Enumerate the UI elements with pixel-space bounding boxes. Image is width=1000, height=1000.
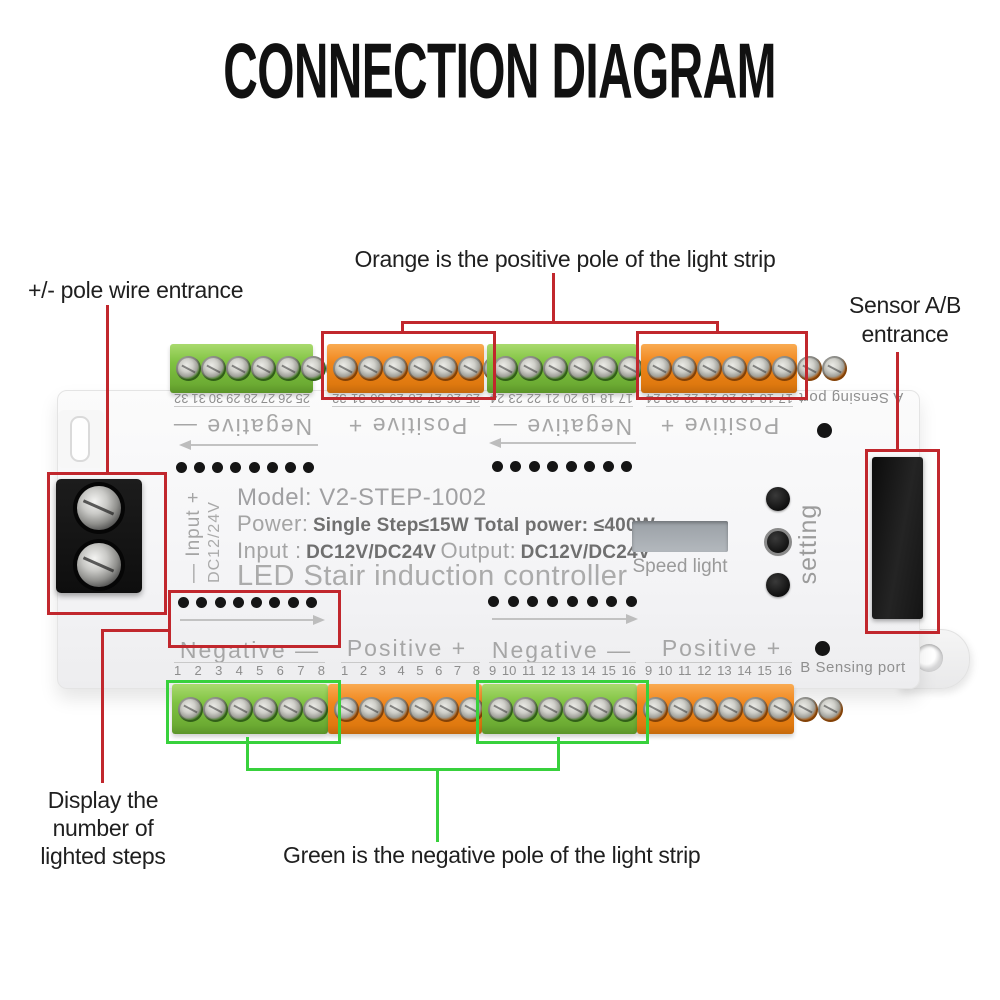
channel-number: 2	[195, 664, 202, 678]
orange-note-bracket-line	[401, 321, 719, 324]
bottom-terminal-block-4	[637, 684, 794, 734]
sensing-port-a-label: A Sensing port	[798, 389, 904, 406]
pole-entrance-callout-line	[106, 305, 109, 473]
step-led-dot	[584, 461, 595, 472]
channel-number: 8	[318, 664, 325, 678]
terminal-screw	[384, 697, 409, 722]
step-led-dot	[194, 462, 205, 473]
bottom-channel-numbers-2: 12345678	[341, 662, 480, 678]
step-led-dot	[547, 461, 558, 472]
step-led-dot	[488, 596, 499, 607]
setting-push-button	[766, 573, 790, 597]
step-led-dot	[567, 596, 578, 607]
bottom-channel-numbers-4: 910111213141516	[645, 662, 792, 678]
model-text: Model: V2-STEP-1002	[237, 484, 487, 512]
power-label: Power:	[237, 511, 308, 536]
channel-number: 27	[261, 391, 275, 405]
channel-number: 11	[522, 664, 536, 678]
channel-number: 2	[360, 664, 367, 678]
mounting-notch	[58, 410, 104, 468]
power-text: Power: Single Step≤15W Total power: ≤400…	[237, 511, 655, 537]
step-led-row-top-right	[492, 460, 632, 472]
direction-arrow-bottom-right	[490, 614, 637, 624]
step-led-row-top-left	[176, 461, 314, 473]
step-led-row-bottom-right	[488, 595, 637, 607]
terminal-screw	[518, 356, 543, 381]
channel-number: 6	[277, 664, 284, 678]
channel-number: 10	[502, 664, 516, 678]
terminal-screw	[201, 356, 226, 381]
channel-number: 13	[561, 664, 575, 678]
channel-number: 26	[278, 391, 292, 405]
channel-number: 8	[473, 664, 480, 678]
step-led-dot	[303, 462, 314, 473]
bottom-channel-numbers-3: 910111213141516	[489, 662, 636, 678]
top-polarity-label-1: Negative —	[157, 413, 327, 440]
channel-number: 31	[191, 391, 205, 405]
speed-light-label: Speed light	[628, 556, 732, 578]
sensing-port-b-label: B Sensing port	[798, 659, 908, 676]
step-led-dot	[212, 462, 223, 473]
channel-number: 32	[174, 391, 188, 405]
power-value: Single Step≤15W Total power: ≤400W	[313, 515, 655, 536]
channel-number: 11	[678, 664, 692, 678]
highlight-box-step-leds	[168, 590, 341, 648]
channel-number: 19	[582, 391, 596, 405]
highlight-box-top-orange-2	[636, 331, 808, 400]
step-led-dot	[508, 596, 519, 607]
top-channel-numbers-1: 2526272829303132	[174, 391, 310, 407]
step-led-dot	[587, 596, 598, 607]
channel-number: 14	[581, 664, 595, 678]
setting-push-button	[766, 530, 790, 554]
channel-number: 29	[226, 391, 240, 405]
display-steps-line3: lighted steps	[13, 842, 193, 870]
terminal-screw	[593, 356, 618, 381]
setting-vertical-label: setting	[794, 499, 820, 589]
orange-note-stub-line	[552, 273, 555, 323]
sensor-callout-line	[896, 352, 899, 452]
terminal-screw	[543, 356, 568, 381]
step-led-dot	[230, 462, 241, 473]
display-callout-horizontal-line	[101, 629, 171, 632]
channel-number: 5	[416, 664, 423, 678]
bottom-polarity-label-3: Negative —	[477, 637, 647, 664]
terminal-screw	[176, 356, 201, 381]
channel-number: 30	[209, 391, 223, 405]
display-steps-note: Display the number of lighted steps	[13, 786, 193, 870]
terminal-screw	[493, 356, 518, 381]
power-input-vertical-label: — Input +	[183, 483, 203, 591]
bottom-terminal-block-2	[328, 684, 482, 734]
highlight-box-sensor-port	[865, 449, 940, 634]
display-callout-vertical-line	[101, 629, 104, 783]
step-led-dot	[566, 461, 577, 472]
channel-number: 15	[757, 664, 771, 678]
channel-number: 15	[601, 664, 615, 678]
indicator-led-top-right	[817, 423, 832, 438]
highlight-box-bottom-green-2	[476, 680, 649, 744]
channel-number: 28	[243, 391, 257, 405]
channel-number: 10	[658, 664, 672, 678]
speed-display-window	[632, 521, 728, 552]
step-led-dot	[492, 461, 503, 472]
step-led-dot	[527, 596, 538, 607]
step-led-dot	[626, 596, 637, 607]
channel-number: 17	[619, 391, 633, 405]
channel-number: 7	[454, 664, 461, 678]
sensor-entrance-line2: entrance	[823, 320, 987, 349]
terminal-screw	[718, 697, 743, 722]
channel-number: 6	[435, 664, 442, 678]
channel-number: 9	[489, 664, 496, 678]
highlight-box-bottom-green-1	[166, 680, 341, 744]
product-name-text: LED Stair induction controller	[237, 560, 628, 593]
page-title: CONNECTION DIAGRAM	[224, 27, 777, 116]
terminal-screw	[276, 356, 301, 381]
direction-arrow-top-right	[490, 438, 638, 448]
terminal-screw	[359, 697, 384, 722]
display-steps-line1: Display the	[13, 786, 193, 814]
mounting-notch-slot	[70, 416, 90, 462]
channel-number: 4	[236, 664, 243, 678]
step-led-dot	[547, 596, 558, 607]
terminal-screw	[822, 356, 847, 381]
channel-number: 9	[645, 664, 652, 678]
channel-number: 3	[379, 664, 386, 678]
top-polarity-label-4: Positive +	[634, 412, 804, 439]
channel-number: 13	[717, 664, 731, 678]
highlight-box-power-terminal	[47, 472, 167, 615]
terminal-screw	[668, 697, 693, 722]
bottom-polarity-label-4: Positive +	[637, 635, 807, 662]
direction-arrow-top-left	[180, 440, 320, 450]
channel-number: 7	[297, 664, 304, 678]
terminal-screw	[743, 697, 768, 722]
channel-number: 1	[341, 664, 348, 678]
top-channel-numbers-3: 1718192021222324	[490, 391, 633, 407]
sensor-entrance-note: Sensor A/B entrance	[823, 291, 987, 349]
channel-number: 4	[397, 664, 404, 678]
top-terminal-block-3	[487, 344, 637, 393]
step-led-dot	[606, 596, 617, 607]
pole-wire-entrance-note: +/- pole wire entrance	[28, 277, 243, 304]
page-title-wrap: CONNECTION DIAGRAM	[0, 28, 1000, 115]
step-led-dot	[176, 462, 187, 473]
top-terminal-block-1	[170, 344, 313, 393]
green-note-center-line	[436, 768, 439, 842]
terminal-screw	[409, 697, 434, 722]
channel-number: 12	[697, 664, 711, 678]
terminal-screw	[793, 697, 818, 722]
channel-number: 14	[737, 664, 751, 678]
channel-number: 18	[600, 391, 614, 405]
channel-number: 16	[621, 664, 635, 678]
channel-number: 22	[527, 391, 541, 405]
channel-number: 23	[508, 391, 522, 405]
step-led-dot	[529, 461, 540, 472]
sensor-entrance-line1: Sensor A/B	[823, 291, 987, 320]
terminal-screw	[768, 697, 793, 722]
terminal-screw	[818, 697, 843, 722]
terminal-screw	[693, 697, 718, 722]
step-led-dot	[510, 461, 521, 472]
channel-number: 12	[541, 664, 555, 678]
step-led-dot	[267, 462, 278, 473]
top-polarity-label-3: Negative —	[477, 413, 647, 440]
green-note-bracket-line	[246, 768, 560, 771]
orange-positive-note: Orange is the positive pole of the light…	[265, 246, 865, 273]
channel-number: 3	[215, 664, 222, 678]
highlight-box-top-orange-1	[321, 331, 496, 400]
power-voltage-vertical-label: DC12/24V	[206, 498, 224, 586]
green-negative-note: Green is the negative pole of the light …	[283, 842, 700, 869]
channel-number: 21	[545, 391, 559, 405]
step-led-dot	[249, 462, 260, 473]
terminal-screw	[568, 356, 593, 381]
terminal-screw	[226, 356, 251, 381]
bottom-polarity-label-2: Positive +	[322, 635, 492, 662]
step-led-dot	[603, 461, 614, 472]
channel-number: 16	[777, 664, 791, 678]
step-led-dot	[621, 461, 632, 472]
setting-push-button	[766, 487, 790, 511]
connection-diagram-page: CONNECTION DIAGRAM Orange is the positiv…	[0, 0, 1000, 1000]
channel-number: 5	[256, 664, 263, 678]
step-led-dot	[285, 462, 296, 473]
terminal-screw	[434, 697, 459, 722]
display-steps-line2: number of	[13, 814, 193, 842]
terminal-screw	[251, 356, 276, 381]
channel-number: 20	[563, 391, 577, 405]
top-polarity-label-2: Positive +	[322, 412, 492, 439]
bottom-channel-numbers-1: 12345678	[174, 662, 325, 678]
channel-number: 1	[174, 664, 181, 678]
setting-buttons-group	[766, 487, 790, 597]
channel-number: 25	[296, 391, 310, 405]
indicator-led-bottom-right	[815, 641, 830, 656]
